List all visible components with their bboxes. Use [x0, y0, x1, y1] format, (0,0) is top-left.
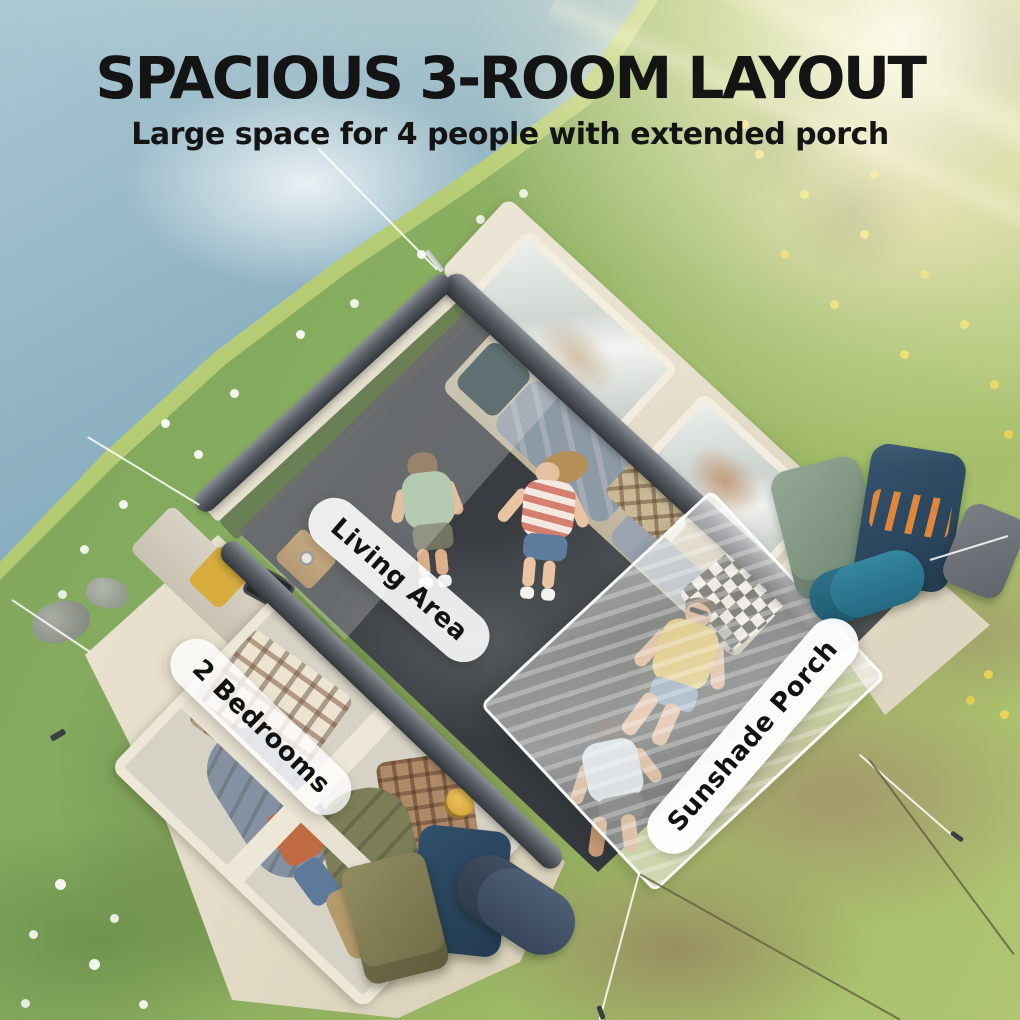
- girl-sock-right: [541, 588, 556, 601]
- girl-figure: [491, 454, 597, 621]
- headline-block: SPACIOUS 3-ROOM LAYOUT Large space for 4…: [0, 48, 1020, 152]
- product-image: SPACIOUS 3-ROOM LAYOUT Large space for 4…: [0, 0, 1020, 1020]
- page-subtitle: Large space for 4 people with extended p…: [0, 117, 1020, 152]
- girl-leg-left: [522, 556, 537, 587]
- backpack-orange-straps: [868, 488, 953, 540]
- girl-sock-left: [520, 586, 535, 599]
- girl-leg-right: [542, 560, 556, 589]
- page-title: SPACIOUS 3-ROOM LAYOUT: [0, 48, 1020, 109]
- boy-leg-right: [434, 548, 449, 575]
- girl-striped-shirt: [520, 478, 577, 540]
